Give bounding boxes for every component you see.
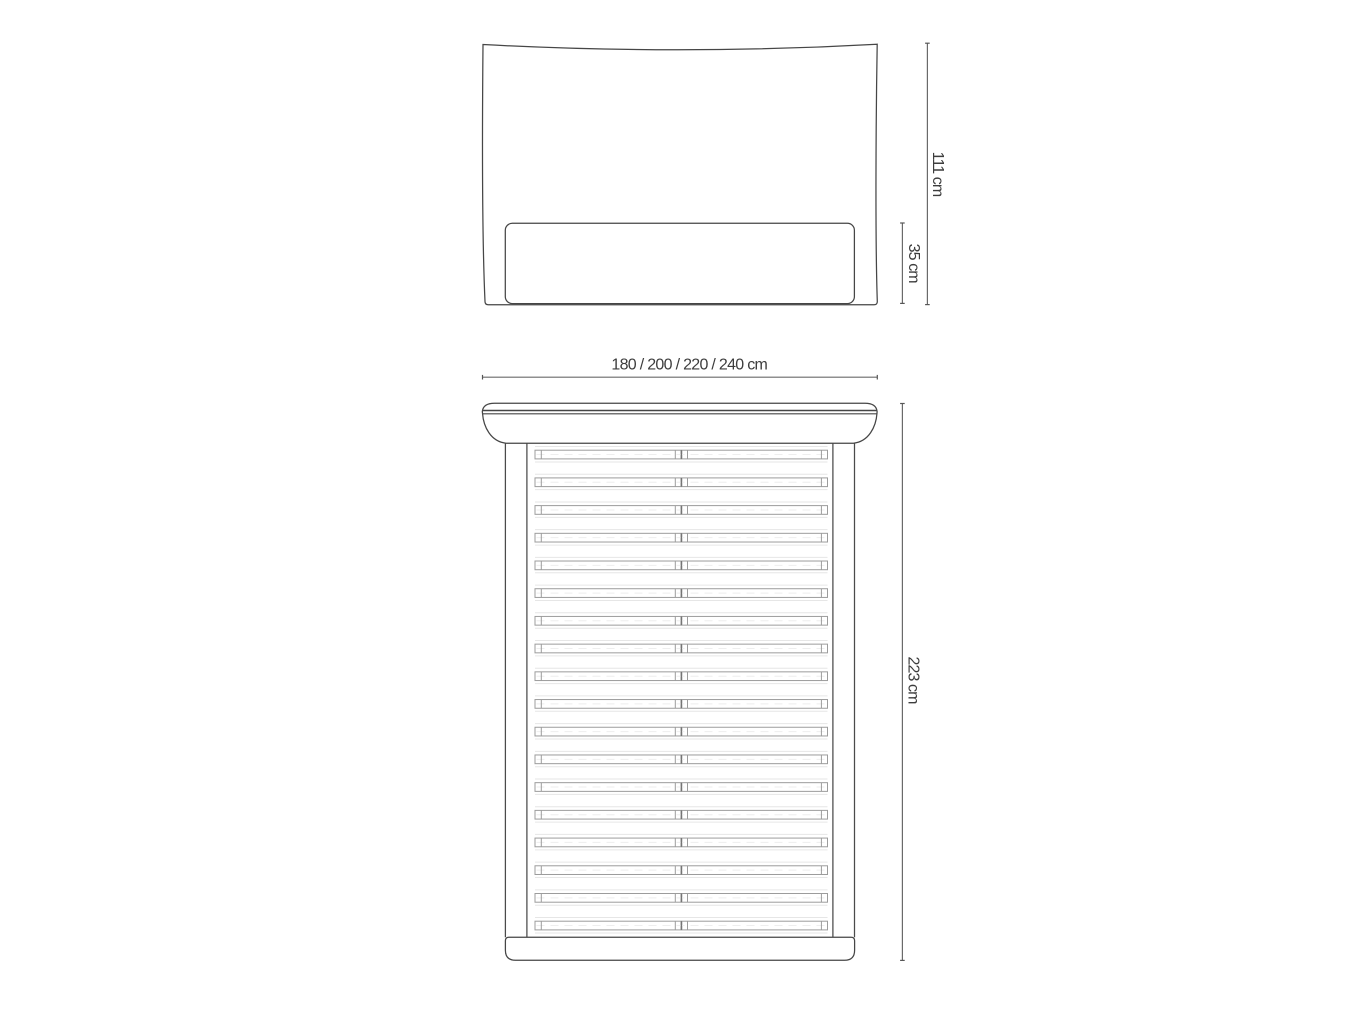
svg-text:180 / 200 / 220 / 240 cm: 180 / 200 / 220 / 240 cm	[611, 356, 767, 373]
svg-text:223 cm: 223 cm	[905, 656, 922, 704]
svg-text:35 cm: 35 cm	[905, 244, 922, 284]
svg-text:111 cm: 111 cm	[929, 152, 946, 197]
